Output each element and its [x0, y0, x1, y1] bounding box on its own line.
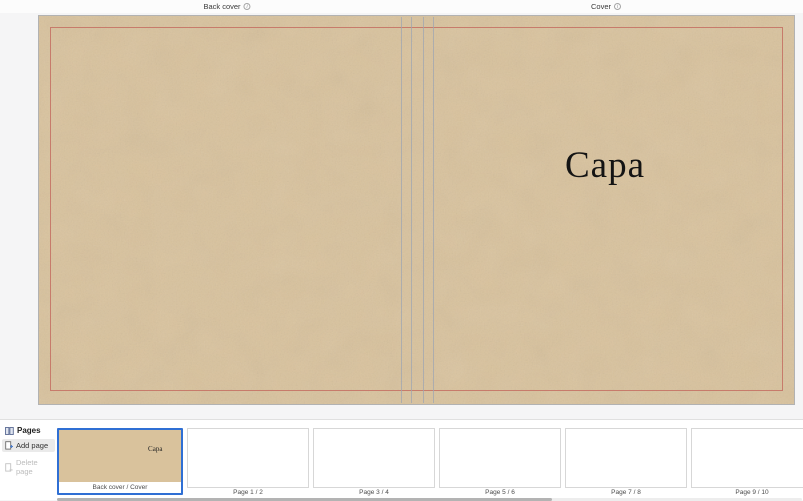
spine-guide-line [433, 17, 434, 403]
info-icon[interactable]: i [614, 3, 621, 10]
cover-label: Cover i [591, 2, 621, 11]
delete-page-icon [5, 463, 13, 472]
spine-guide-line [401, 17, 402, 403]
thumbnail-preview: Capa [59, 430, 181, 482]
cover-label-text: Cover [591, 2, 611, 11]
thumbnail-label: Back cover / Cover [59, 482, 181, 493]
add-page-icon [5, 441, 13, 450]
cover-spread-canvas[interactable]: Capa [38, 15, 795, 405]
top-bar: Back cover i Cover i [0, 0, 803, 13]
back-cover-label: Back cover i [203, 2, 250, 11]
info-icon[interactable]: i [244, 3, 251, 10]
page-thumbnail[interactable]: Page 9 / 10 [691, 428, 803, 498]
add-page-label: Add page [16, 441, 48, 450]
pages-title-label: Pages [17, 426, 41, 435]
thumbnail-cover-title: Capa [148, 445, 162, 453]
spine-guide-line [423, 17, 424, 403]
pages-panel: Pages Add page Delete page Capa Back cov… [0, 419, 803, 500]
thumbnail-label: Page 9 / 10 [691, 488, 803, 498]
thumbnail-preview [313, 428, 435, 488]
thumbnail-label: Page 1 / 2 [187, 488, 309, 498]
thumbnail-preview [565, 428, 687, 488]
thumbnail-preview [187, 428, 309, 488]
cover-title-text[interactable]: Capa [565, 147, 645, 184]
page-thumbnail[interactable]: Page 7 / 8 [565, 428, 687, 498]
thumbnail-preview [439, 428, 561, 488]
pages-icon [5, 427, 14, 435]
back-cover-label-text: Back cover [203, 2, 240, 11]
page-thumbnail[interactable]: Page 3 / 4 [313, 428, 435, 498]
page-thumbnail[interactable]: Page 5 / 6 [439, 428, 561, 498]
thumbnail-label: Page 5 / 6 [439, 488, 561, 498]
spine-guide-line [411, 17, 412, 403]
pages-panel-title: Pages [5, 426, 57, 435]
page-thumbnail[interactable]: Capa Back cover / Cover [57, 428, 183, 495]
leather-texture [39, 16, 794, 404]
pages-toolbox: Pages Add page Delete page [0, 420, 57, 500]
thumbnail-preview [691, 428, 803, 488]
thumbnail-label: Page 3 / 4 [313, 488, 435, 498]
delete-page-button[interactable]: Delete page [2, 456, 55, 478]
delete-page-label: Delete page [16, 458, 52, 476]
thumbnail-strip: Capa Back cover / Cover Page 1 / 2 Page … [57, 428, 803, 498]
thumbnail-label: Page 7 / 8 [565, 488, 687, 498]
page-thumbnail[interactable]: Page 1 / 2 [187, 428, 309, 498]
add-page-button[interactable]: Add page [2, 439, 55, 452]
